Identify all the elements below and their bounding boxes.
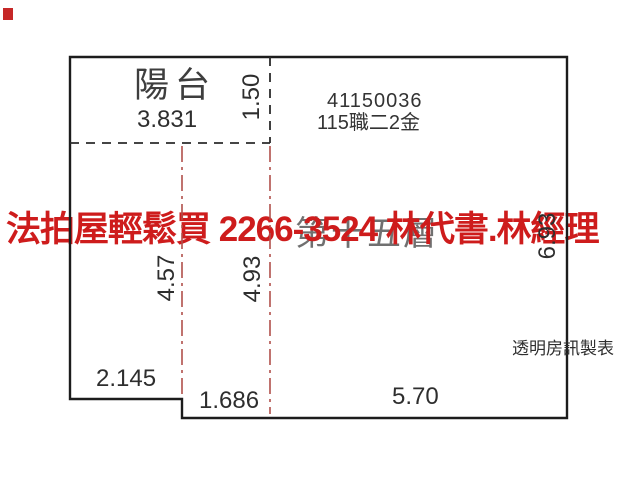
credit-label: 透明房訊製表 <box>512 340 614 357</box>
dimension-bottom-step-width: 1.686 <box>199 389 259 413</box>
dimension-right-depth: 6.93 <box>536 213 560 260</box>
corner-red-mark <box>3 8 13 20</box>
dimension-middle-depth: 4.93 <box>241 256 265 303</box>
dimension-bottom-left-width: 2.145 <box>96 367 156 391</box>
dimension-balcony-depth: 1.50 <box>240 74 264 121</box>
case-number: 41150036 <box>327 91 423 111</box>
dimension-balcony-width: 3.831 <box>137 108 197 132</box>
case-label: 115職二2金 <box>317 113 420 133</box>
dimension-bottom-main-width: 5.70 <box>392 385 439 409</box>
dimension-left-depth: 4.57 <box>155 255 179 302</box>
balcony-label: 陽台 <box>134 68 216 103</box>
floorplan-page: 第十五層 法拍屋輕鬆買 2266-3524 林代書.林經理 陽台 3.831 1… <box>0 0 640 480</box>
